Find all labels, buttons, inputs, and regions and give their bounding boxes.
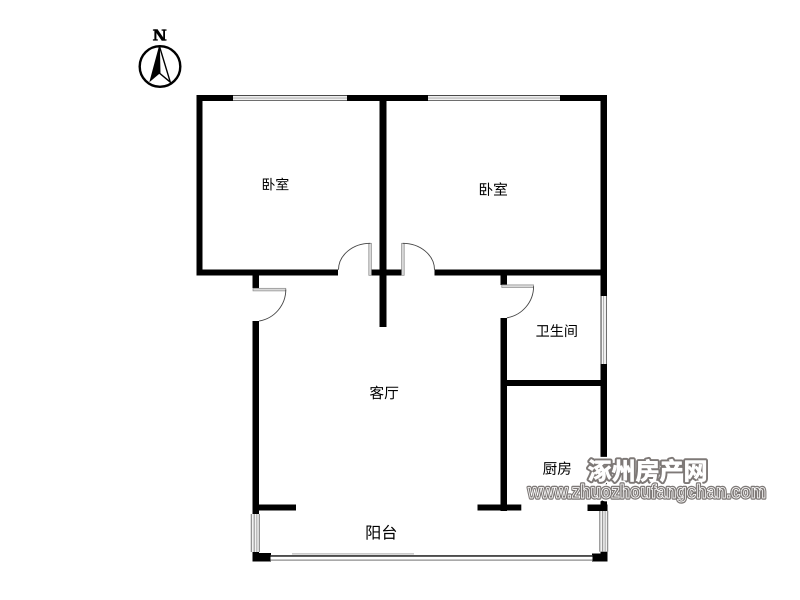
svg-text:www.zhuozhoufangchan.com: www.zhuozhoufangchan.com xyxy=(527,481,766,503)
